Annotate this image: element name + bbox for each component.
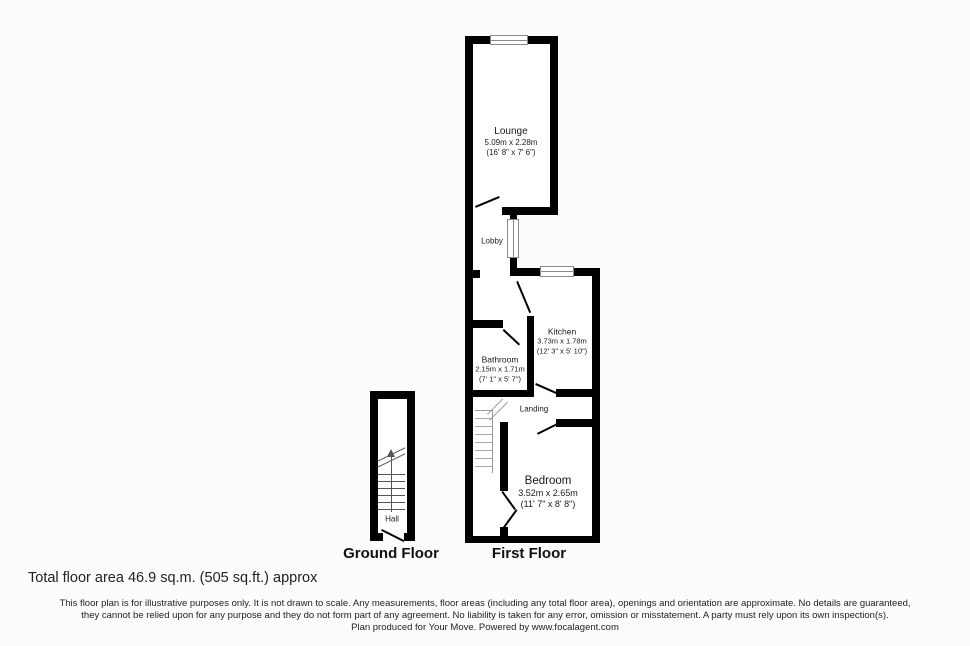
bedroom-label: Bedroom 3.52m x 2.65m (11' 7" x 8' 8") — [518, 475, 578, 509]
hall-name: Hall — [385, 515, 399, 524]
kitchen-label: Kitchen 3.73m x 1.78m (12' 3" x 5' 10") — [537, 327, 587, 356]
kitchen-window — [540, 266, 574, 277]
first-floor-left-wall — [465, 36, 473, 543]
lounge-window — [490, 35, 528, 45]
bathroom-bottom-wall — [465, 390, 534, 397]
bedroom-left-wall — [500, 422, 508, 491]
disclaimer-text: This floor plan is for illustrative purp… — [0, 598, 970, 634]
floorplan-canvas: Lounge 5.09m x 2.28m (16' 8" x 7' 6") Lo… — [0, 0, 970, 646]
lobby-left-stub-wall — [465, 270, 480, 278]
lounge-right-wall — [550, 36, 558, 215]
bathroom-name: Bathroom — [475, 355, 525, 365]
bathroom-kitchen-divider-wall — [527, 316, 534, 397]
bathroom-dim-imperial: (7' 1" x 5' 7") — [475, 374, 525, 384]
lounge-dim-metric: 5.09m x 2.28m — [485, 138, 538, 148]
hall-bottom-right-wall — [404, 533, 415, 541]
hall-bottom-left-wall — [370, 533, 383, 541]
ground-floor-stairs-center-line — [391, 457, 392, 512]
hall-right-wall — [407, 391, 415, 541]
kitchen-bottom-wall — [560, 389, 600, 397]
bathroom-dim-metric: 2.15m x 1.71m — [475, 365, 525, 375]
hall-label: Hall — [385, 515, 399, 524]
bedroom-dim-imperial: (11' 7" x 8' 8") — [518, 499, 578, 510]
kitchen-name: Kitchen — [537, 327, 587, 337]
lounge-dim-imperial: (16' 8" x 7' 6") — [485, 148, 538, 158]
lobby-label: Lobby — [481, 237, 503, 246]
disclaimer-line-1: This floor plan is for illustrative purp… — [0, 598, 970, 610]
landing-label: Landing — [520, 405, 548, 414]
ground-floor-hall-area — [378, 399, 407, 533]
bathroom-top-wall — [465, 320, 503, 328]
lounge-name: Lounge — [485, 126, 538, 138]
first-floor-title: First Floor — [492, 545, 566, 562]
total-floor-area-text: Total floor area 46.9 sq.m. (505 sq.ft.)… — [28, 570, 317, 586]
first-floor-bottom-wall — [465, 536, 600, 543]
landing-name: Landing — [520, 405, 548, 414]
kitchen-dim-metric: 3.73m x 1.78m — [537, 337, 587, 347]
bedroom-top-wall — [560, 419, 600, 427]
disclaimer-line-2: they cannot be relied upon for any purpo… — [0, 610, 970, 622]
lobby-name: Lobby — [481, 237, 503, 246]
bathroom-label: Bathroom 2.15m x 1.71m (7' 1" x 5' 7") — [475, 355, 525, 384]
lounge-bottom-wall — [502, 207, 558, 215]
lobby-window — [507, 219, 519, 258]
disclaimer-line-3: Plan produced for Your Move. Powered by … — [0, 622, 970, 634]
first-floor-right-wall — [592, 268, 600, 543]
ground-floor-title: Ground Floor — [343, 545, 439, 562]
kitchen-dim-imperial: (12' 3" x 5' 10") — [537, 346, 587, 356]
bedroom-dim-metric: 3.52m x 2.65m — [518, 488, 578, 499]
bedroom-name: Bedroom — [518, 475, 578, 488]
lounge-label: Lounge 5.09m x 2.28m (16' 8" x 7' 6") — [485, 126, 538, 158]
